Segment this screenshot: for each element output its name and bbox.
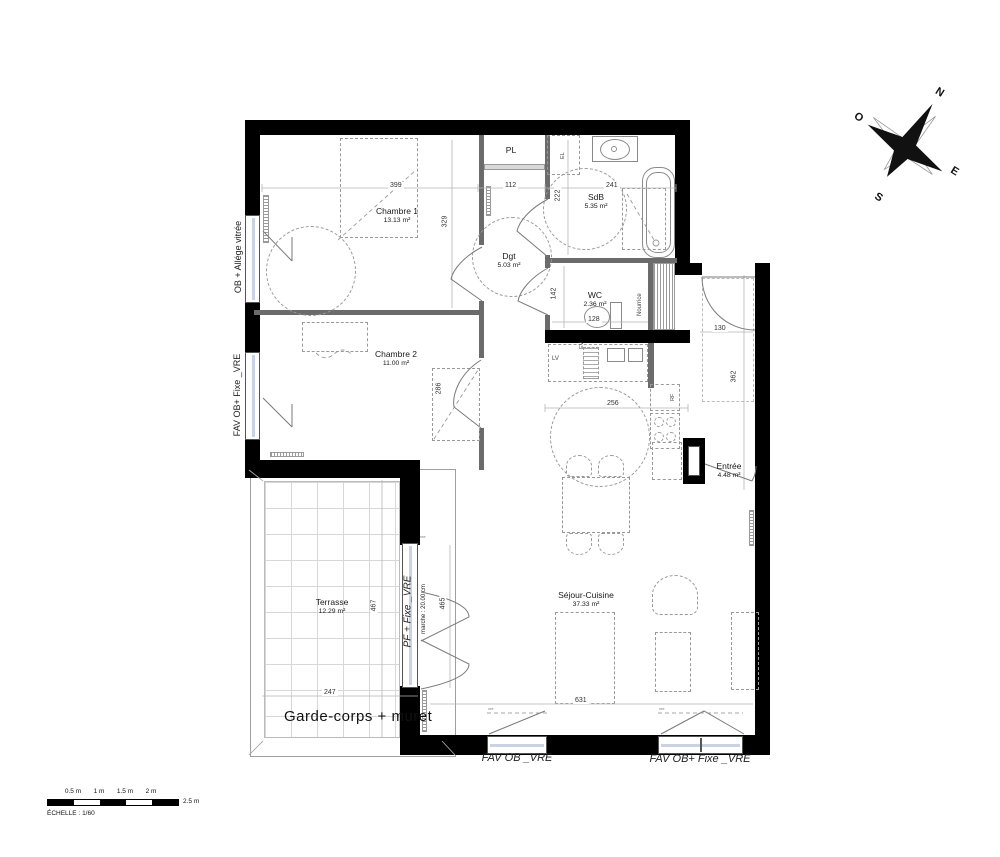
room-label-chambre1: Chambre 1 13.13 m² bbox=[347, 207, 447, 225]
wall-entree-stub bbox=[675, 263, 702, 275]
compass-west: O bbox=[852, 110, 866, 125]
kitchen-sink-drainer bbox=[628, 348, 643, 362]
compass-icon: N E S O bbox=[843, 78, 973, 208]
compass-east: E bbox=[948, 164, 961, 178]
label-window-left-top: OB + Allége vitrée bbox=[233, 212, 243, 302]
armchair bbox=[652, 575, 698, 615]
window-left-mid bbox=[245, 352, 260, 440]
radiator-dgt bbox=[486, 186, 491, 216]
dim-286: 286 bbox=[435, 381, 442, 397]
label-vre-tag: vre bbox=[420, 534, 426, 539]
label-window-bottom-right: FAV OB+ Fixe _VRE bbox=[630, 753, 770, 765]
radiator-chambre1 bbox=[263, 195, 269, 243]
cabinet-near-door bbox=[652, 442, 682, 480]
dim-142: 142 bbox=[550, 286, 557, 302]
wall-top bbox=[245, 120, 690, 135]
closet-shelf bbox=[484, 164, 545, 170]
room-name: SdB bbox=[556, 193, 636, 203]
scale-caption-label: ÉCHELLE : bbox=[47, 810, 80, 817]
wall-sdb-right bbox=[675, 120, 690, 265]
room-area: 12.29 m² bbox=[282, 608, 382, 616]
wall-wc-left-stub bbox=[545, 315, 550, 330]
low-table bbox=[655, 632, 691, 692]
window-left-top bbox=[245, 215, 260, 303]
scale-tick-label: 2 m bbox=[146, 788, 157, 795]
room-area: 11.00 m² bbox=[346, 360, 446, 368]
room-label-pl: PL bbox=[491, 146, 531, 156]
scale-tick-label: 0.5 m bbox=[65, 788, 81, 795]
room-label-entree: Entrée 4.48 m² bbox=[689, 462, 769, 480]
dim-329: 329 bbox=[441, 214, 448, 230]
wall-kitchen-right bbox=[648, 343, 654, 388]
room-label-terrasse: Terrasse 12.29 m² bbox=[282, 598, 382, 616]
room-area: 4.48 m² bbox=[689, 472, 769, 480]
scale-tick-label: 1.5 m bbox=[117, 788, 133, 795]
dim-222: 222 bbox=[554, 188, 561, 204]
room-name: WC bbox=[555, 291, 635, 301]
dining-table bbox=[562, 477, 630, 533]
wardrobe-chambre2 bbox=[432, 368, 480, 441]
radiator-chambre2 bbox=[270, 452, 304, 457]
room-label-wc: WC 2.36 m² bbox=[555, 291, 635, 309]
wall-terrace-top bbox=[400, 478, 420, 545]
hob-burner bbox=[654, 432, 664, 442]
label-nourrice: Nourrice bbox=[637, 272, 643, 316]
dim-130: 130 bbox=[712, 325, 728, 332]
scale-bar: 0.5 m 1 m 1.5 m 2 m 2.5 m ÉCHELLE : 1/60 bbox=[45, 786, 225, 822]
room-area: 37.33 m² bbox=[536, 601, 636, 609]
dim-467: 467 bbox=[370, 598, 377, 614]
chair bbox=[598, 533, 624, 555]
scale-bar-segments bbox=[47, 799, 179, 806]
room-name: Chambre 2 bbox=[346, 350, 446, 360]
room-area: 5.35 m² bbox=[556, 203, 636, 211]
turning-circle-chambre1 bbox=[266, 226, 356, 316]
chair bbox=[566, 455, 592, 477]
dim-256: 256 bbox=[605, 400, 621, 407]
nourrice-duct bbox=[653, 263, 675, 330]
dim-247: 247 bbox=[322, 689, 338, 696]
dim-241: 241 bbox=[604, 182, 620, 189]
room-name: Entrée bbox=[689, 462, 769, 472]
scale-caption: ÉCHELLE : 1/60 bbox=[47, 810, 95, 817]
label-window-left-mid: FAV OB+ Fixe _VRE bbox=[232, 349, 242, 441]
dim-399: 399 bbox=[388, 182, 404, 189]
label-window-bottom-left: FAV OB _VRE bbox=[457, 752, 577, 764]
chair bbox=[598, 455, 624, 477]
dim-362: 362 bbox=[730, 369, 737, 385]
room-area: 2.36 m² bbox=[555, 301, 635, 309]
dim-112: 112 bbox=[503, 182, 518, 189]
room-label-sejour: Séjour-Cuisine 37.33 m² bbox=[536, 591, 636, 609]
label-fridge: RF bbox=[670, 381, 676, 401]
chair bbox=[566, 533, 592, 555]
label-electric: EL bbox=[560, 139, 566, 159]
compass-south: S bbox=[872, 190, 885, 204]
sink-basin-sdb bbox=[600, 139, 630, 160]
hob-burner bbox=[666, 417, 676, 427]
label-vre-tag: vre bbox=[488, 706, 494, 711]
label-dishwasher: LV bbox=[552, 356, 559, 362]
window-bottom-right bbox=[658, 736, 743, 754]
room-label-dgt: Dgt 5.03 m² bbox=[469, 252, 549, 270]
kitchen-sink-basin bbox=[607, 348, 625, 362]
wall-chambre2-bottom bbox=[245, 460, 420, 478]
wall-chambre1-chambre2 bbox=[254, 310, 480, 315]
compass-north: N bbox=[933, 85, 946, 99]
scale-tick-label: 1 m bbox=[94, 788, 105, 795]
scale-end-label: 2.5 m bbox=[183, 798, 199, 805]
entree-clear-zone bbox=[702, 278, 754, 402]
wall-wc-bottom bbox=[545, 330, 690, 343]
radiator-sejour bbox=[749, 510, 754, 546]
room-label-sdb: SdB 5.35 m² bbox=[556, 193, 636, 211]
room-name: Dgt bbox=[469, 252, 549, 262]
room-name: Séjour-Cuisine bbox=[536, 591, 636, 601]
dim-465: 465 bbox=[439, 596, 446, 612]
room-name: Terrasse bbox=[282, 598, 382, 608]
dim-631: 631 bbox=[573, 697, 589, 704]
label-vre-tag: vre bbox=[659, 706, 665, 711]
floor-plan-canvas: Chambre 1 13.13 m² Chambre 2 11.00 m² Dg… bbox=[0, 0, 1000, 857]
label-terrace-door: PF + Fixe _VRE bbox=[403, 566, 414, 658]
room-area: 13.13 m² bbox=[347, 217, 447, 225]
sofa bbox=[555, 612, 615, 704]
room-label-chambre2: Chambre 2 11.00 m² bbox=[346, 350, 446, 368]
label-sink: EV bbox=[579, 329, 585, 349]
scale-caption-value: 1/60 bbox=[82, 810, 95, 817]
label-garde-corps: Garde-corps + muret bbox=[284, 708, 432, 725]
label-step: marche : 20.00 cm bbox=[421, 574, 427, 644]
room-area: 5.03 m² bbox=[469, 262, 549, 270]
hob-burner bbox=[654, 417, 664, 427]
dim-128: 128 bbox=[586, 316, 602, 323]
sideboard bbox=[731, 612, 759, 690]
hob-burner bbox=[666, 432, 676, 442]
dish-rack bbox=[583, 347, 599, 379]
room-name: PL bbox=[491, 146, 531, 156]
desk-chambre2 bbox=[302, 322, 368, 352]
room-name: Chambre 1 bbox=[347, 207, 447, 217]
